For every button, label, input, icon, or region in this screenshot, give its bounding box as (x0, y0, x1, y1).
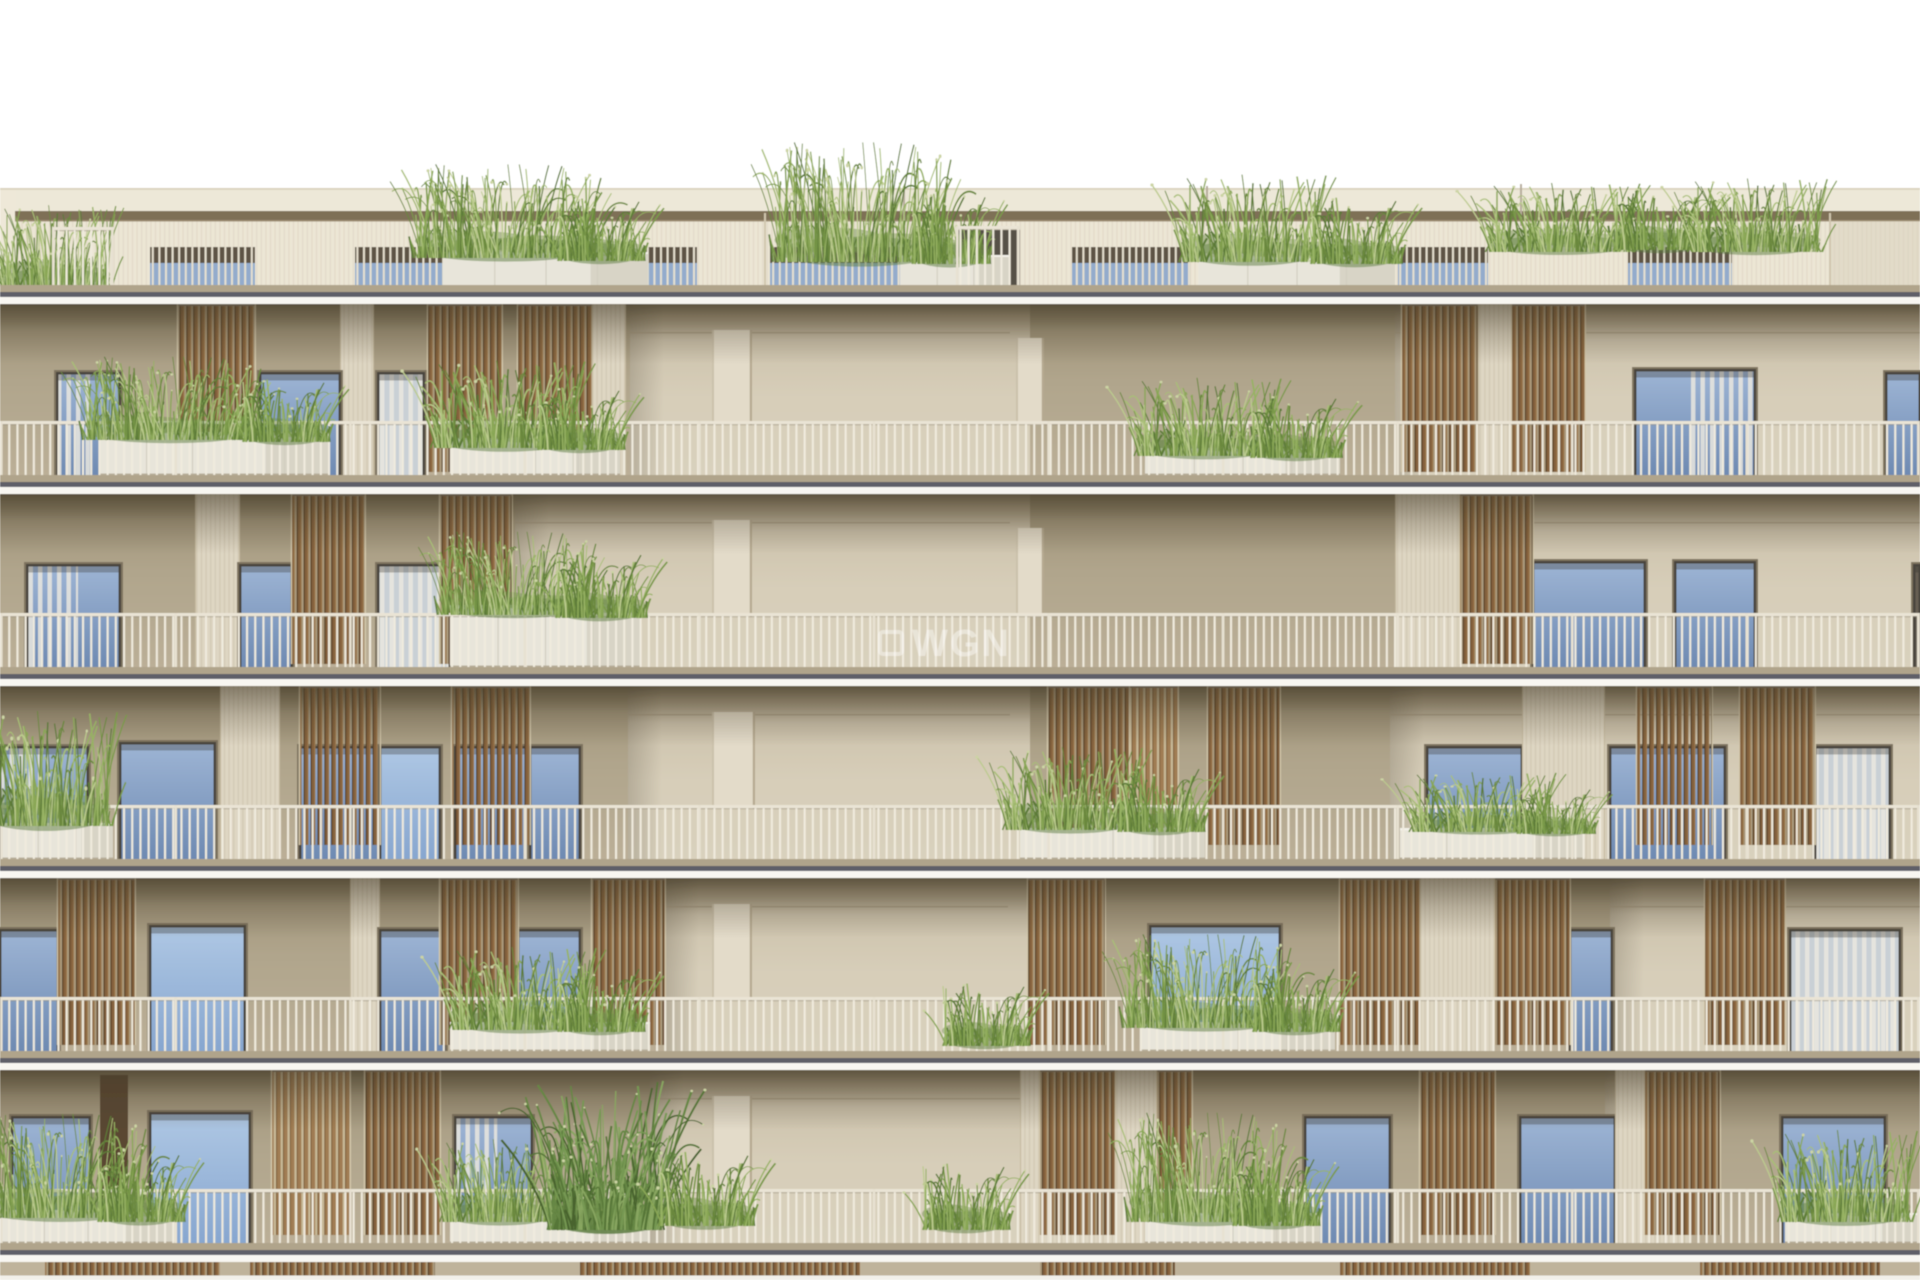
svg-text:WGN: WGN (912, 623, 1011, 665)
